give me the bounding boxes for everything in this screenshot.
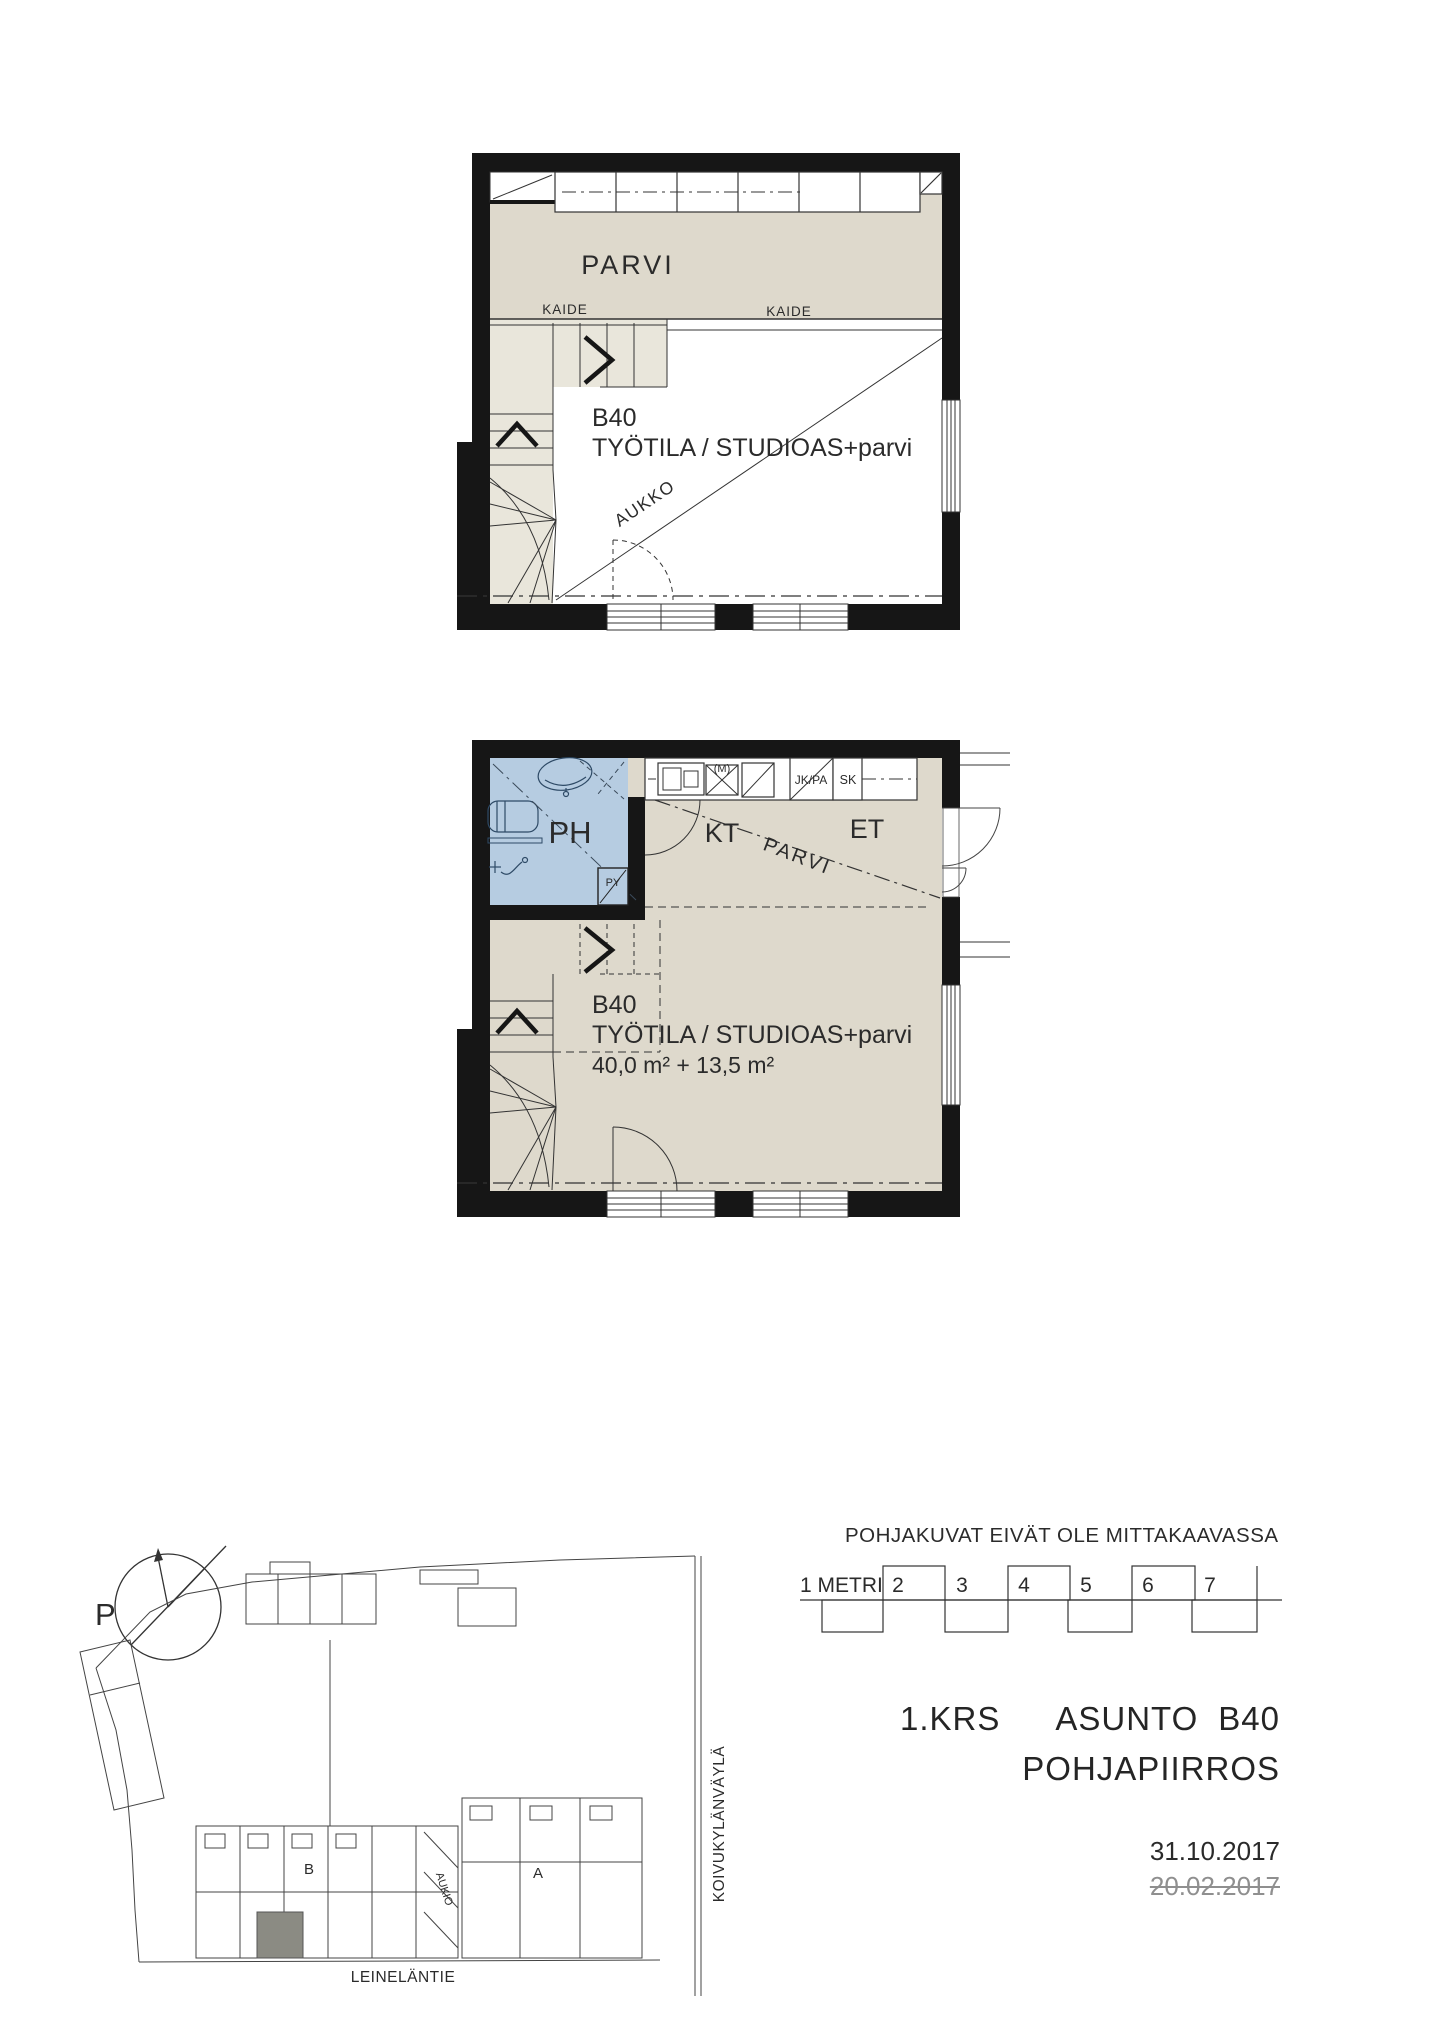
hidden-door — [613, 540, 673, 600]
title-line-floor-apartment: 1.KRS ASUNTO B40 — [900, 1700, 1280, 1738]
not-to-scale-note: POHJAKUVAT EIVÄT OLE MITTAKAAVASSA — [845, 1524, 1285, 1548]
stair-run-floor — [490, 387, 553, 604]
railing-label-right: KAIDE — [766, 304, 812, 319]
unit-label: B40 — [592, 991, 636, 1019]
bathroom-label: PH — [548, 815, 591, 850]
apartment-unit: B40 — [1218, 1700, 1280, 1738]
scale-7: 7 — [1204, 1574, 1216, 1597]
site-plan: B A AUKIO KOIVUKYLÄNVÄYLÄ LEINELÄNTIE — [80, 1556, 728, 1996]
drawing-type-label: POHJAPIIRROS — [900, 1750, 1280, 1788]
appliance-m-label: (M) — [714, 763, 731, 775]
sk-label: SK — [840, 773, 857, 787]
kitchen-counter — [645, 758, 917, 800]
dishwasher-unit — [742, 763, 774, 797]
entrance-door — [942, 808, 1000, 897]
bathroom-wall-right — [628, 797, 645, 905]
north-compass: P — [95, 1546, 226, 1660]
scale-4: 4 — [1018, 1574, 1030, 1597]
plaza-label: AUKIO — [433, 1871, 455, 1908]
building-block-a — [462, 1798, 642, 1958]
stair-landing-floor — [490, 319, 667, 387]
block-a-label: A — [533, 1865, 543, 1882]
wardrobe-row — [555, 172, 942, 212]
title-block: 1.KRS ASUNTO B40 POHJAPIIRROS 31.10.2017… — [900, 1700, 1280, 1902]
scale-3: 3 — [956, 1574, 968, 1597]
unit-type-label: TYÖTILA / STUDIOAS+parvi — [592, 434, 912, 462]
entry-label: ET — [850, 814, 885, 844]
upper-floor-plan: PARVI KAIDE KAIDE B40 TYÖTILA / STUDIOAS… — [457, 153, 960, 630]
bathroom-wall-bottom — [490, 905, 645, 920]
floor-plan-sheet: PARVI KAIDE KAIDE B40 TYÖTILA / STUDIOAS… — [0, 0, 1440, 2036]
corner-window-niche — [490, 172, 555, 204]
py-label: PY — [606, 877, 621, 889]
kitchen-label: KT — [705, 818, 740, 848]
neighbor-stub-lines — [960, 753, 1010, 957]
unit-label: B40 — [592, 404, 636, 432]
superseded-date: 20.02.2017 — [900, 1871, 1280, 1902]
floor-label: 1.KRS — [900, 1700, 1000, 1738]
scale-6: 6 — [1142, 1574, 1154, 1597]
unit-type-label: TYÖTILA / STUDIOAS+parvi — [592, 1021, 912, 1049]
revision-date: 31.10.2017 — [900, 1836, 1280, 1867]
building-tilted — [80, 1640, 164, 1810]
railing-label-left: KAIDE — [542, 302, 588, 317]
building-block-b — [196, 1826, 458, 1958]
street-bottom-label: LEINELÄNTIE — [351, 1969, 456, 1986]
apartment-label: ASUNTO — [1055, 1700, 1198, 1738]
scale-2: 2 — [892, 1574, 904, 1597]
plot-boundary — [96, 1556, 695, 1668]
building-top-right — [420, 1570, 478, 1584]
north-label: P — [95, 1597, 116, 1632]
scale-5: 5 — [1080, 1574, 1092, 1597]
fridge-label: JK/PA — [795, 773, 827, 787]
unit-area-label: 40,0 m² + 13,5 m² — [592, 1052, 774, 1078]
highlighted-unit-b40 — [257, 1912, 303, 1958]
block-b-label: B — [304, 1861, 314, 1878]
py-closet: PY — [598, 868, 628, 905]
scale-bar: 1 METRI 2 3 4 5 6 7 — [800, 1566, 1282, 1632]
aukko-label: AUKKO — [611, 476, 679, 531]
building-top — [246, 1574, 376, 1624]
main-floor-plan: PY (M) — [457, 740, 1010, 1217]
street-right-label: KOIVUKYLÄNVÄYLÄ — [711, 1746, 728, 1903]
scale-1-metri: 1 METRI — [800, 1574, 883, 1597]
room-label-parvi: PARVI — [581, 250, 675, 280]
